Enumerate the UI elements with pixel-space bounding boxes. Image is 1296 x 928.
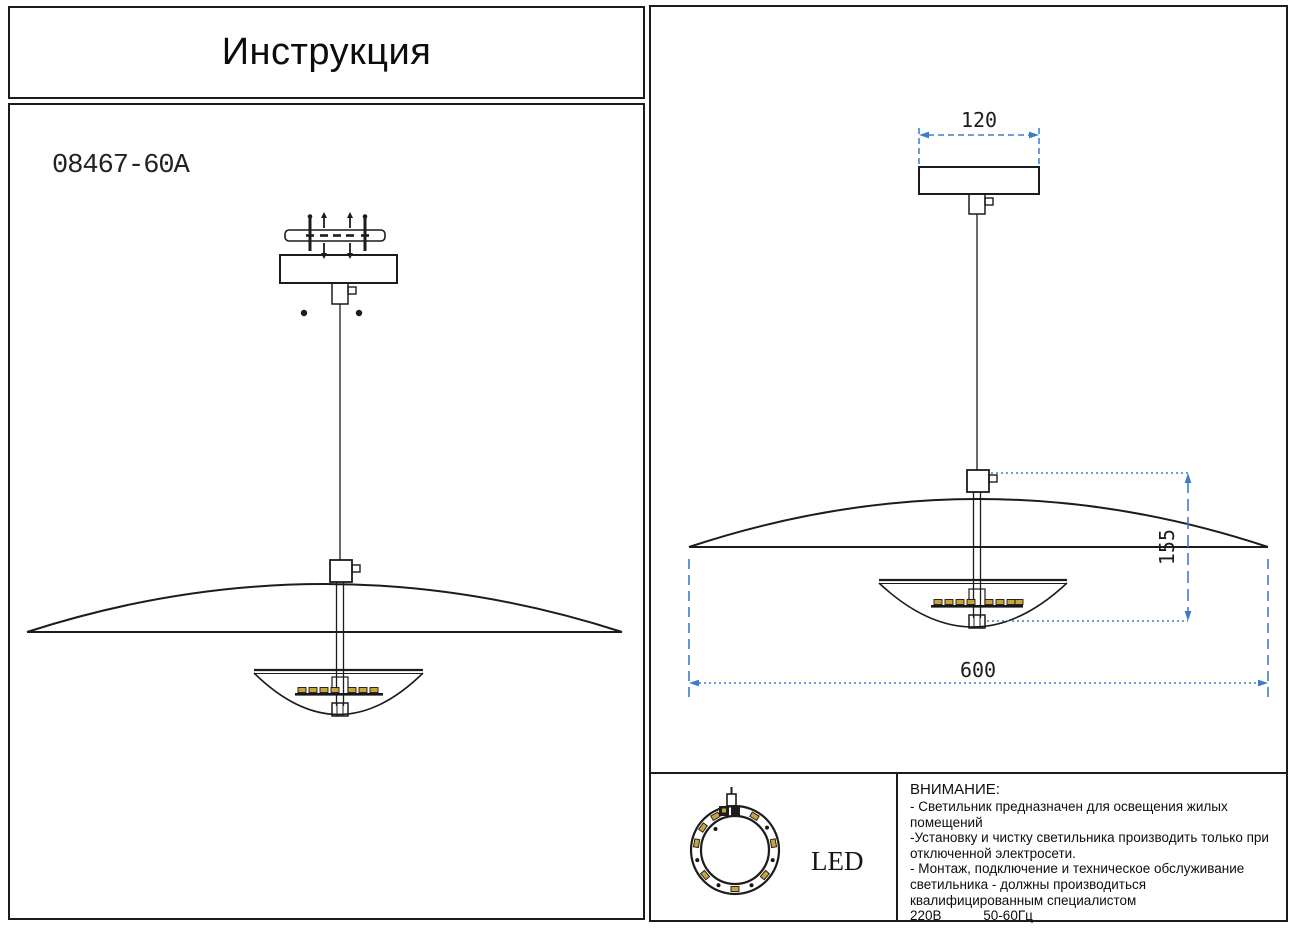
diffuser-bowl-icon xyxy=(254,670,423,716)
canopy-icon xyxy=(280,255,397,316)
warning-line: светильника - должны производиться xyxy=(910,877,1274,893)
title-panel: Инструкция xyxy=(8,6,645,99)
dim-shade-diameter-label: 600 xyxy=(960,658,996,682)
frequency-value: 50-60Гц xyxy=(983,908,1033,923)
voltage-value: 220В xyxy=(910,908,942,923)
led-chips xyxy=(298,688,378,693)
warning-line: -Установку и чистку светильника производ… xyxy=(910,830,1274,846)
canopy-icon xyxy=(919,167,1039,214)
led-chips xyxy=(934,600,1023,605)
assembly-panel: 08467-60A xyxy=(8,103,645,920)
dim-fixture-height-label: 155 xyxy=(1155,529,1179,565)
power-specs: 220В 50-60Гц xyxy=(910,908,1274,924)
led-panel: LED xyxy=(651,774,898,920)
rod-connector-icon xyxy=(330,560,360,582)
warning-line: помещений xyxy=(910,815,1274,831)
warning-line: - Монтаж, подключение и техническое обсл… xyxy=(910,861,1274,877)
assembly-diagram xyxy=(10,105,643,918)
mounting-bracket-icon xyxy=(285,212,385,259)
warning-panel: ВНИМАНИЕ: - Светильник предназначен для … xyxy=(898,774,1286,920)
warning-heading: ВНИМАНИЕ: xyxy=(910,781,1274,799)
arrow-up-icon xyxy=(324,217,350,228)
shade-outline xyxy=(27,584,622,632)
arrow-down-icon xyxy=(324,243,350,254)
ring-connector-icon xyxy=(719,787,740,816)
instruction-sheet: Инструкция 08467-60A xyxy=(0,0,1296,928)
warning-line: - Светильник предназначен для освещения … xyxy=(910,799,1274,815)
warning-line: квалифицированным специалистом xyxy=(910,893,1274,909)
info-strip: LED ВНИМАНИЕ: - Светильник предназначен … xyxy=(651,774,1286,920)
dimension-drawing-area: 120 xyxy=(651,7,1286,774)
shade-outline xyxy=(689,499,1268,547)
dimensions-panel: 120 xyxy=(649,5,1288,922)
warning-line: отключенной электросети. xyxy=(910,846,1274,862)
dimension-diagram: 120 xyxy=(651,7,1286,770)
page-title: Инструкция xyxy=(222,31,432,74)
dim-canopy-width: 120 xyxy=(919,108,1039,168)
dim-canopy-width-label: 120 xyxy=(961,108,997,132)
led-label: LED xyxy=(811,846,863,877)
